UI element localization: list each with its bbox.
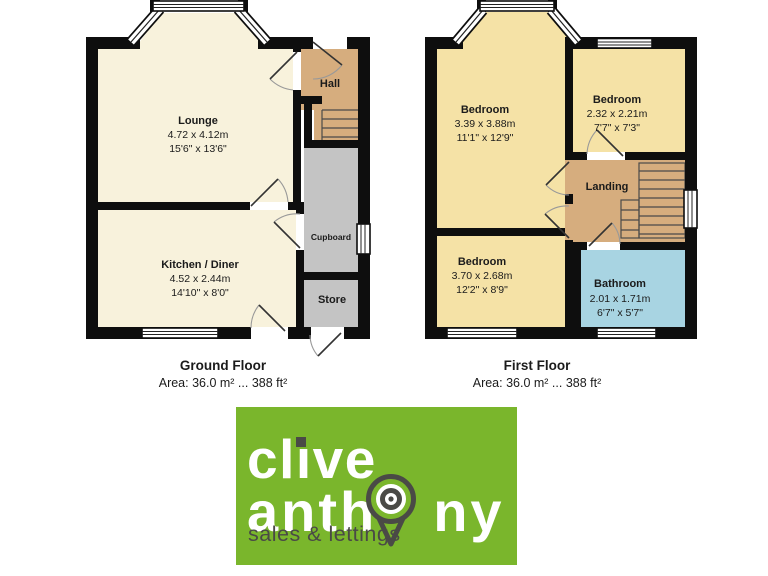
lounge-dim-ft: 15'6" x 13'6": [169, 143, 227, 155]
cupboard-label: Cupboard: [311, 232, 351, 242]
kitchen-dim-ft: 14'10" x 8'0": [171, 287, 229, 299]
ground-floor-title: Ground Floor: [180, 358, 267, 373]
first-floor-plan: Bedroom 3.39 x 3.88m 11'1" x 12'9" Bedro…: [425, 0, 697, 390]
bathroom-window: [597, 328, 656, 338]
kitchen-window: [142, 328, 218, 338]
bedroom-front-dim-ft: 11'1" x 12'9": [457, 132, 514, 144]
first-floor-title: First Floor: [504, 358, 571, 373]
bedroom-small-label: Bedroom: [593, 94, 642, 106]
lounge-dim-m: 4.72 x 4.12m: [168, 129, 229, 141]
bedroom-small-window: [597, 39, 652, 49]
bedroom-small-dim-m: 2.32 x 2.21m: [587, 108, 648, 120]
hall-label: Hall: [320, 78, 340, 90]
bedroom-back-label: Bedroom: [458, 256, 507, 268]
first-floor-area: Area: 36.0 m² ... 388 ft²: [473, 376, 602, 390]
logo-line1: clıve: [247, 432, 377, 487]
bedroom-back-dim-ft: 12'2" x 8'9": [456, 284, 508, 296]
ground-floor-plan: Lounge 4.72 x 4.12m 15'6" x 13'6" Hall K…: [86, 0, 370, 390]
bathroom-dim-m: 2.01 x 1.71m: [590, 293, 651, 305]
ground-stairs: [314, 110, 358, 140]
logo-tagline: sales & lettings: [248, 524, 401, 546]
lounge-label: Lounge: [178, 115, 218, 127]
bedroom-back-dim-m: 3.70 x 2.68m: [452, 270, 513, 282]
landing-window: [684, 190, 697, 228]
cupboard-window: [357, 224, 370, 254]
bathroom-label: Bathroom: [594, 278, 646, 290]
logo-i-dot: [296, 437, 306, 447]
kitchen-label: Kitchen / Diner: [161, 259, 239, 271]
agency-logo: clıve anthny sales & lettings: [236, 407, 517, 565]
floorplans-drawing: Lounge 4.72 x 4.12m 15'6" x 13'6" Hall K…: [0, 0, 768, 400]
kitchen-dim-m: 4.52 x 2.44m: [170, 273, 231, 285]
cupboard-room: [304, 143, 358, 272]
store-label: Store: [318, 294, 346, 306]
bathroom-dim-ft: 6'7" x 5'7": [597, 307, 643, 319]
bedroom-front-dim-m: 3.39 x 3.88m: [455, 118, 516, 130]
ground-floor-area: Area: 36.0 m² ... 388 ft²: [159, 376, 288, 390]
landing-label: Landing: [586, 181, 629, 193]
bedroom-small-dim-ft: 7'7" x 7'3": [594, 122, 640, 134]
bedroom-back-window: [447, 328, 517, 338]
floorplan-page: { "colors":{ "wall":"#0e0e0e", "lounge_c…: [0, 0, 768, 576]
bedroom-front-label: Bedroom: [461, 104, 510, 116]
